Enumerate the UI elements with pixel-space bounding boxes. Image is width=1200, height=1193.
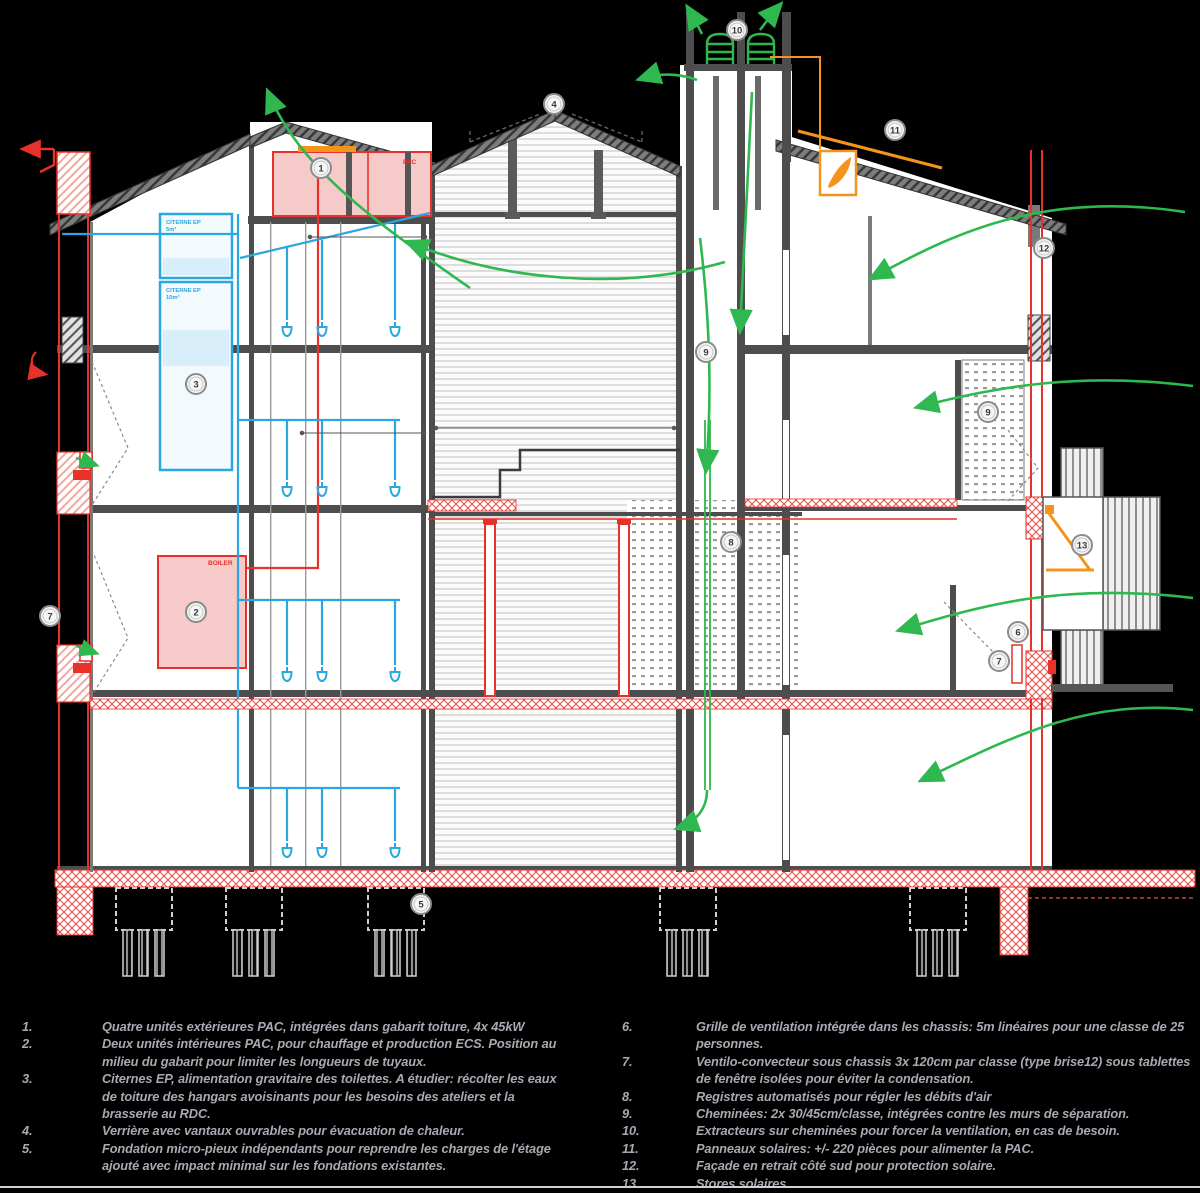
marker-fondation: 5	[411, 894, 431, 914]
legend-item-text: Quatre unités extérieures PAC, intégrées…	[102, 1018, 562, 1035]
cistern-1: CITERNE EP 5m³	[160, 214, 232, 278]
new-floor-dotted-zone	[627, 500, 801, 696]
legend-item-number: 13.	[622, 1175, 696, 1192]
marker-citerne: 3	[186, 374, 206, 394]
svg-text:4: 4	[551, 99, 557, 110]
legend-column-right: 6. Grille de ventilation intégrée dans l…	[600, 1018, 1200, 1192]
svg-text:10m³: 10m³	[166, 294, 180, 301]
new-column	[483, 519, 497, 696]
right-gable-wall	[782, 160, 790, 872]
legend-item-number: 2.	[22, 1035, 102, 1070]
marker-cheminee-droite: 9	[978, 402, 998, 422]
micro-pile-foundations	[116, 888, 966, 976]
legend-item-number: 12.	[622, 1157, 696, 1174]
legend-item: 3. Citernes EP, alimentation gravitaire …	[22, 1070, 600, 1122]
marker-stores: 13	[1072, 535, 1092, 555]
legend-item-text: Verrière avec vantaux ouvrables pour éva…	[102, 1122, 562, 1139]
marker-convecteur: 7	[989, 651, 1009, 671]
svg-text:11: 11	[890, 125, 901, 136]
marker-panneaux: 11	[885, 120, 905, 140]
svg-text:CITERNE EP: CITERNE EP	[166, 288, 201, 294]
marker-verriere: 4	[544, 94, 564, 114]
pile-group	[116, 888, 172, 976]
marker-boiler: 2	[186, 602, 206, 622]
svg-text:7: 7	[47, 611, 52, 622]
marker-registre: 8	[721, 532, 741, 552]
marker-extracteur: 10	[727, 20, 747, 40]
legend-item-number: 7.	[622, 1053, 696, 1088]
legend-item-number: 8.	[622, 1088, 696, 1105]
legend: 1. Quatre unités extérieures PAC, intégr…	[0, 1018, 1200, 1192]
svg-text:9: 9	[703, 347, 708, 358]
svg-text:5: 5	[418, 899, 424, 910]
legend-item-text: Registres automatisés pour régler les dé…	[696, 1088, 1196, 1105]
external-louver-unit	[1043, 448, 1173, 692]
legend-item: 10. Extracteurs sur cheminées pour force…	[622, 1122, 1200, 1139]
legend-item-text: Deux unités intérieures PAC, pour chauff…	[102, 1035, 562, 1070]
legend-item: 12. Façade en retrait côté sud pour prot…	[622, 1157, 1200, 1174]
ground-slab	[55, 866, 1195, 955]
bottom-divider	[0, 1186, 1200, 1188]
legend-item-number: 4.	[22, 1122, 102, 1139]
new-column	[617, 519, 631, 696]
svg-text:13: 13	[1077, 540, 1088, 551]
legend-item-text: Façade en retrait côté sud pour protecti…	[696, 1157, 1196, 1174]
legend-item: 6. Grille de ventilation intégrée dans l…	[622, 1018, 1200, 1053]
legend-item-number: 11.	[622, 1140, 696, 1157]
masonry-pier	[62, 317, 83, 363]
svg-text:6: 6	[1015, 627, 1020, 638]
boiler-room-label: BOILER	[208, 560, 233, 567]
svg-text:2: 2	[193, 607, 198, 618]
legend-item: 11. Panneaux solaires: +/- 220 pièces po…	[622, 1140, 1200, 1157]
solar-panel-icon	[820, 151, 856, 195]
marker-grille: 6	[1008, 622, 1028, 642]
legend-item-number: 1.	[22, 1018, 102, 1035]
legend-item: 2. Deux unités intérieures PAC, pour cha…	[22, 1035, 600, 1070]
legend-item: 8. Registres automatisés pour régler les…	[622, 1088, 1200, 1105]
svg-text:9: 9	[985, 407, 990, 418]
extractor-fan-icon	[748, 34, 774, 64]
marker-convecteur-gauche: 7	[40, 606, 60, 626]
rainwater-cisterns: CITERNE EP 5m³ CITERNE EP 10m³	[160, 214, 232, 470]
legend-item-text: Panneaux solaires: +/- 220 pièces pour a…	[696, 1140, 1196, 1157]
building-section-drawing: PAC BOILER CITERNE EP 5m³ CITERNE EP 10m…	[0, 0, 1200, 1010]
chimney-shaft-right	[962, 360, 1024, 500]
legend-column-left: 1. Quatre unités extérieures PAC, intégr…	[0, 1018, 600, 1192]
legend-item-text: Extracteurs sur cheminées pour forcer la…	[696, 1122, 1196, 1139]
svg-text:5m³: 5m³	[166, 226, 176, 233]
legend-item-number: 10.	[622, 1122, 696, 1139]
legend-item-number: 9.	[622, 1105, 696, 1122]
legend-item-number: 3.	[22, 1070, 102, 1122]
svg-text:7: 7	[996, 656, 1001, 667]
pac-room: PAC	[273, 146, 431, 216]
svg-text:CITERNE EP: CITERNE EP	[166, 220, 201, 226]
solar-collector-strip	[298, 146, 356, 152]
pac-room-label: PAC	[403, 159, 417, 166]
svg-text:8: 8	[728, 537, 733, 548]
legend-item-number: 5.	[22, 1140, 102, 1175]
marker-cheminee: 9	[696, 342, 716, 362]
extractor-fan-icon	[707, 34, 733, 64]
legend-item: 13. Stores solaires	[622, 1175, 1200, 1192]
svg-text:10: 10	[732, 25, 743, 36]
hangar-corrugated-wall	[432, 112, 680, 872]
legend-item: 5. Fondation micro-pieux indépendants po…	[22, 1140, 600, 1175]
legend-item: 7. Ventilo-convecteur sous chassis 3x 12…	[622, 1053, 1200, 1088]
svg-text:3: 3	[193, 379, 198, 390]
svg-text:1: 1	[318, 163, 324, 174]
pile-group	[660, 888, 716, 976]
legend-item: 1. Quatre unités extérieures PAC, intégr…	[22, 1018, 600, 1035]
legend-item-number: 6.	[622, 1018, 696, 1053]
legend-item: 4. Verrière avec vantaux ouvrables pour …	[22, 1122, 600, 1139]
pile-group	[910, 888, 966, 976]
marker-pac: 1	[311, 158, 331, 178]
legend-item: 9. Cheminées: 2x 30/45cm/classe, intégré…	[622, 1105, 1200, 1122]
legend-item-text: Citernes EP, alimentation gravitaire des…	[102, 1070, 562, 1122]
legend-item-text: Ventilo-convecteur sous chassis 3x 120cm…	[696, 1053, 1196, 1088]
pile-group	[226, 888, 282, 976]
marker-facade: 12	[1034, 238, 1054, 258]
legend-item-text: Stores solaires	[696, 1175, 1196, 1192]
parapet-block	[57, 152, 90, 214]
legend-item-text: Grille de ventilation intégrée dans les …	[696, 1018, 1196, 1053]
legend-item-text: Cheminées: 2x 30/45cm/classe, intégrées …	[696, 1105, 1196, 1122]
legend-item-text: Fondation micro-pieux indépendants pour …	[102, 1140, 562, 1175]
ventilo-convecteur	[1012, 645, 1022, 683]
svg-text:12: 12	[1039, 243, 1050, 254]
